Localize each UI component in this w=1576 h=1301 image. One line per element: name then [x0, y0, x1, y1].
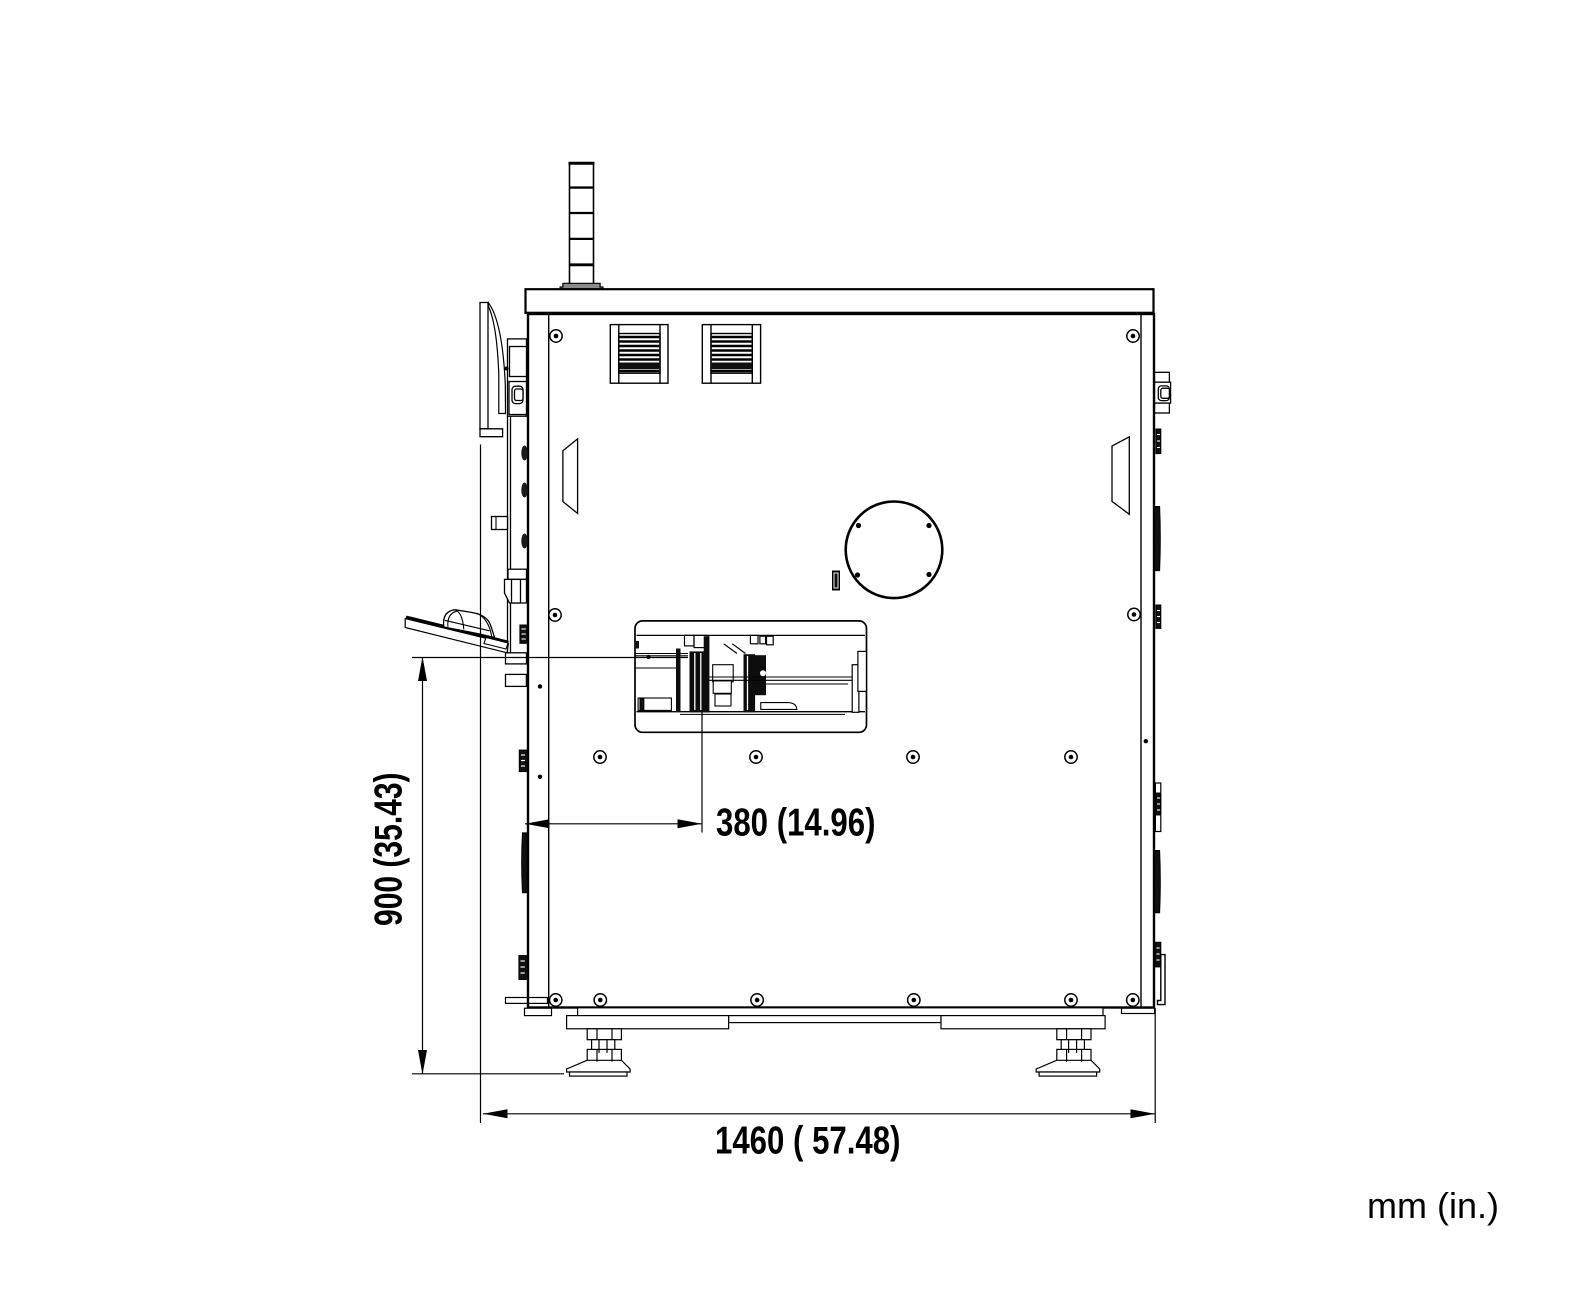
svg-text:380 (14.96): 380 (14.96) — [716, 801, 876, 844]
svg-text:900 (35.43): 900 (35.43) — [367, 772, 411, 926]
svg-text:mm (in.): mm (in.) — [1367, 1185, 1499, 1226]
svg-text:1460 ( 57.48): 1460 ( 57.48) — [715, 1119, 901, 1162]
